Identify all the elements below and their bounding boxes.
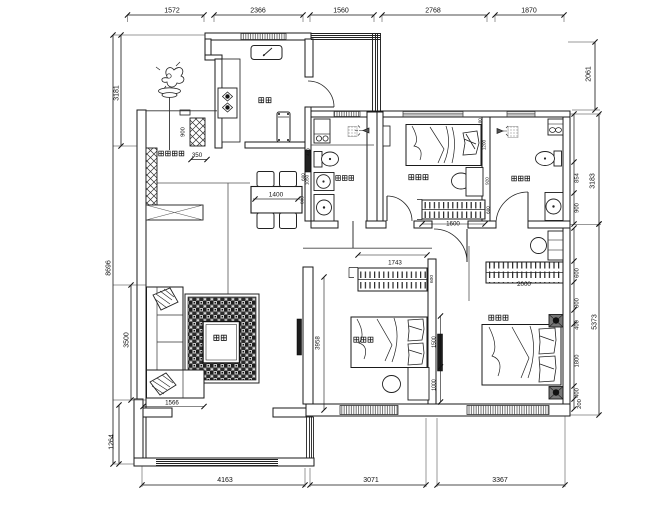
svg-text:1400: 1400 bbox=[269, 192, 284, 199]
svg-text:2000: 2000 bbox=[517, 281, 531, 288]
svg-text:1743: 1743 bbox=[388, 260, 402, 267]
svg-text:1572: 1572 bbox=[164, 8, 180, 15]
svg-text:600: 600 bbox=[575, 268, 581, 278]
svg-text:854: 854 bbox=[575, 172, 581, 182]
svg-text:420: 420 bbox=[306, 148, 311, 156]
svg-text:3500: 3500 bbox=[124, 332, 131, 348]
svg-text:2768: 2768 bbox=[425, 8, 441, 15]
svg-text:1200: 1200 bbox=[482, 139, 487, 150]
svg-text:3181: 3181 bbox=[114, 85, 121, 101]
svg-text:900: 900 bbox=[181, 127, 187, 137]
svg-text:1500: 1500 bbox=[432, 336, 438, 348]
svg-text:200: 200 bbox=[577, 399, 583, 409]
svg-text:800: 800 bbox=[575, 298, 581, 308]
svg-text:1566: 1566 bbox=[165, 400, 179, 407]
svg-text:1560: 1560 bbox=[333, 8, 349, 15]
svg-text:920: 920 bbox=[485, 177, 490, 185]
svg-text:3071: 3071 bbox=[363, 477, 379, 484]
svg-text:400: 400 bbox=[575, 388, 581, 398]
svg-text:3367: 3367 bbox=[492, 477, 508, 484]
svg-text:2061: 2061 bbox=[586, 66, 593, 82]
svg-text:1000: 1000 bbox=[432, 379, 438, 391]
svg-text:2366: 2366 bbox=[250, 8, 266, 15]
svg-text:600: 600 bbox=[486, 206, 491, 214]
svg-text:350: 350 bbox=[192, 152, 203, 159]
svg-text:4163: 4163 bbox=[217, 477, 233, 484]
svg-text:5373: 5373 bbox=[592, 314, 599, 330]
svg-text:3183: 3183 bbox=[590, 173, 597, 189]
svg-text:1870: 1870 bbox=[521, 8, 537, 15]
svg-text:8696: 8696 bbox=[106, 260, 113, 276]
svg-text:3958: 3958 bbox=[315, 336, 322, 350]
svg-text:900: 900 bbox=[575, 203, 581, 213]
svg-text:100: 100 bbox=[478, 118, 483, 126]
svg-text:1264: 1264 bbox=[109, 434, 116, 450]
svg-text:800: 800 bbox=[300, 196, 305, 204]
svg-text:400: 400 bbox=[575, 320, 581, 330]
svg-text:600: 600 bbox=[429, 275, 435, 283]
svg-text:1050: 1050 bbox=[305, 174, 310, 185]
svg-text:1800: 1800 bbox=[575, 355, 581, 368]
